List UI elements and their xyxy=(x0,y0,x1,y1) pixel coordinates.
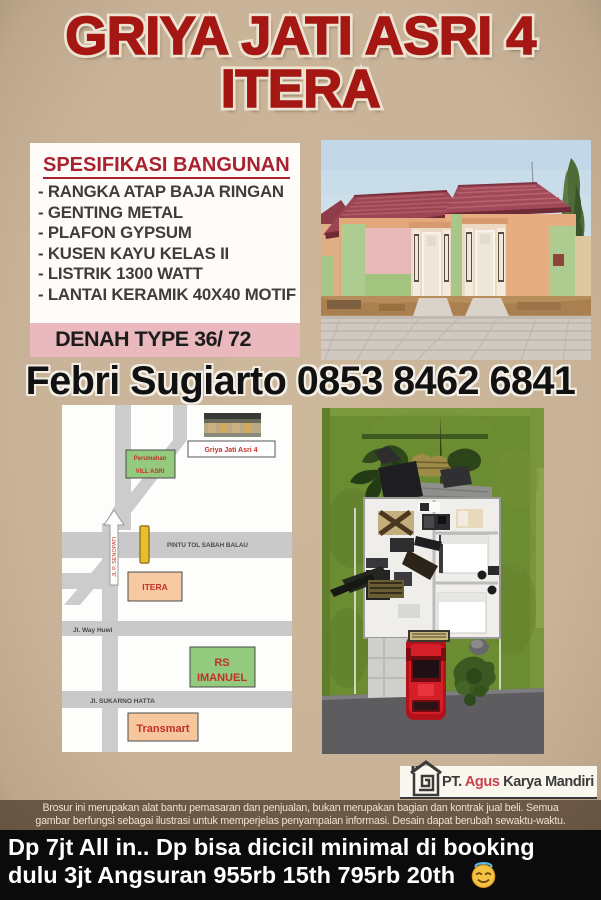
svg-text:Jl. Way Huwi: Jl. Way Huwi xyxy=(73,627,113,634)
svg-text:JL P. SENOPATI: JL P. SENOPATI xyxy=(112,536,118,577)
svg-text:IMANUEL: IMANUEL xyxy=(197,672,247,684)
svg-text:Transmart: Transmart xyxy=(136,723,190,735)
svg-text:RS: RS xyxy=(214,657,229,669)
svg-text:Griya Jati Asri 4: Griya Jati Asri 4 xyxy=(204,447,257,454)
svg-text:VILL ASRI: VILL ASRI xyxy=(136,469,165,475)
svg-text:Perumahan: Perumahan xyxy=(134,456,167,462)
svg-text:ITERA: ITERA xyxy=(142,582,168,592)
svg-text:Jl. SUKARNO HATTA: Jl. SUKARNO HATTA xyxy=(90,698,155,705)
svg-text:PINTU TOL SABAH BALAU: PINTU TOL SABAH BALAU xyxy=(167,542,248,549)
